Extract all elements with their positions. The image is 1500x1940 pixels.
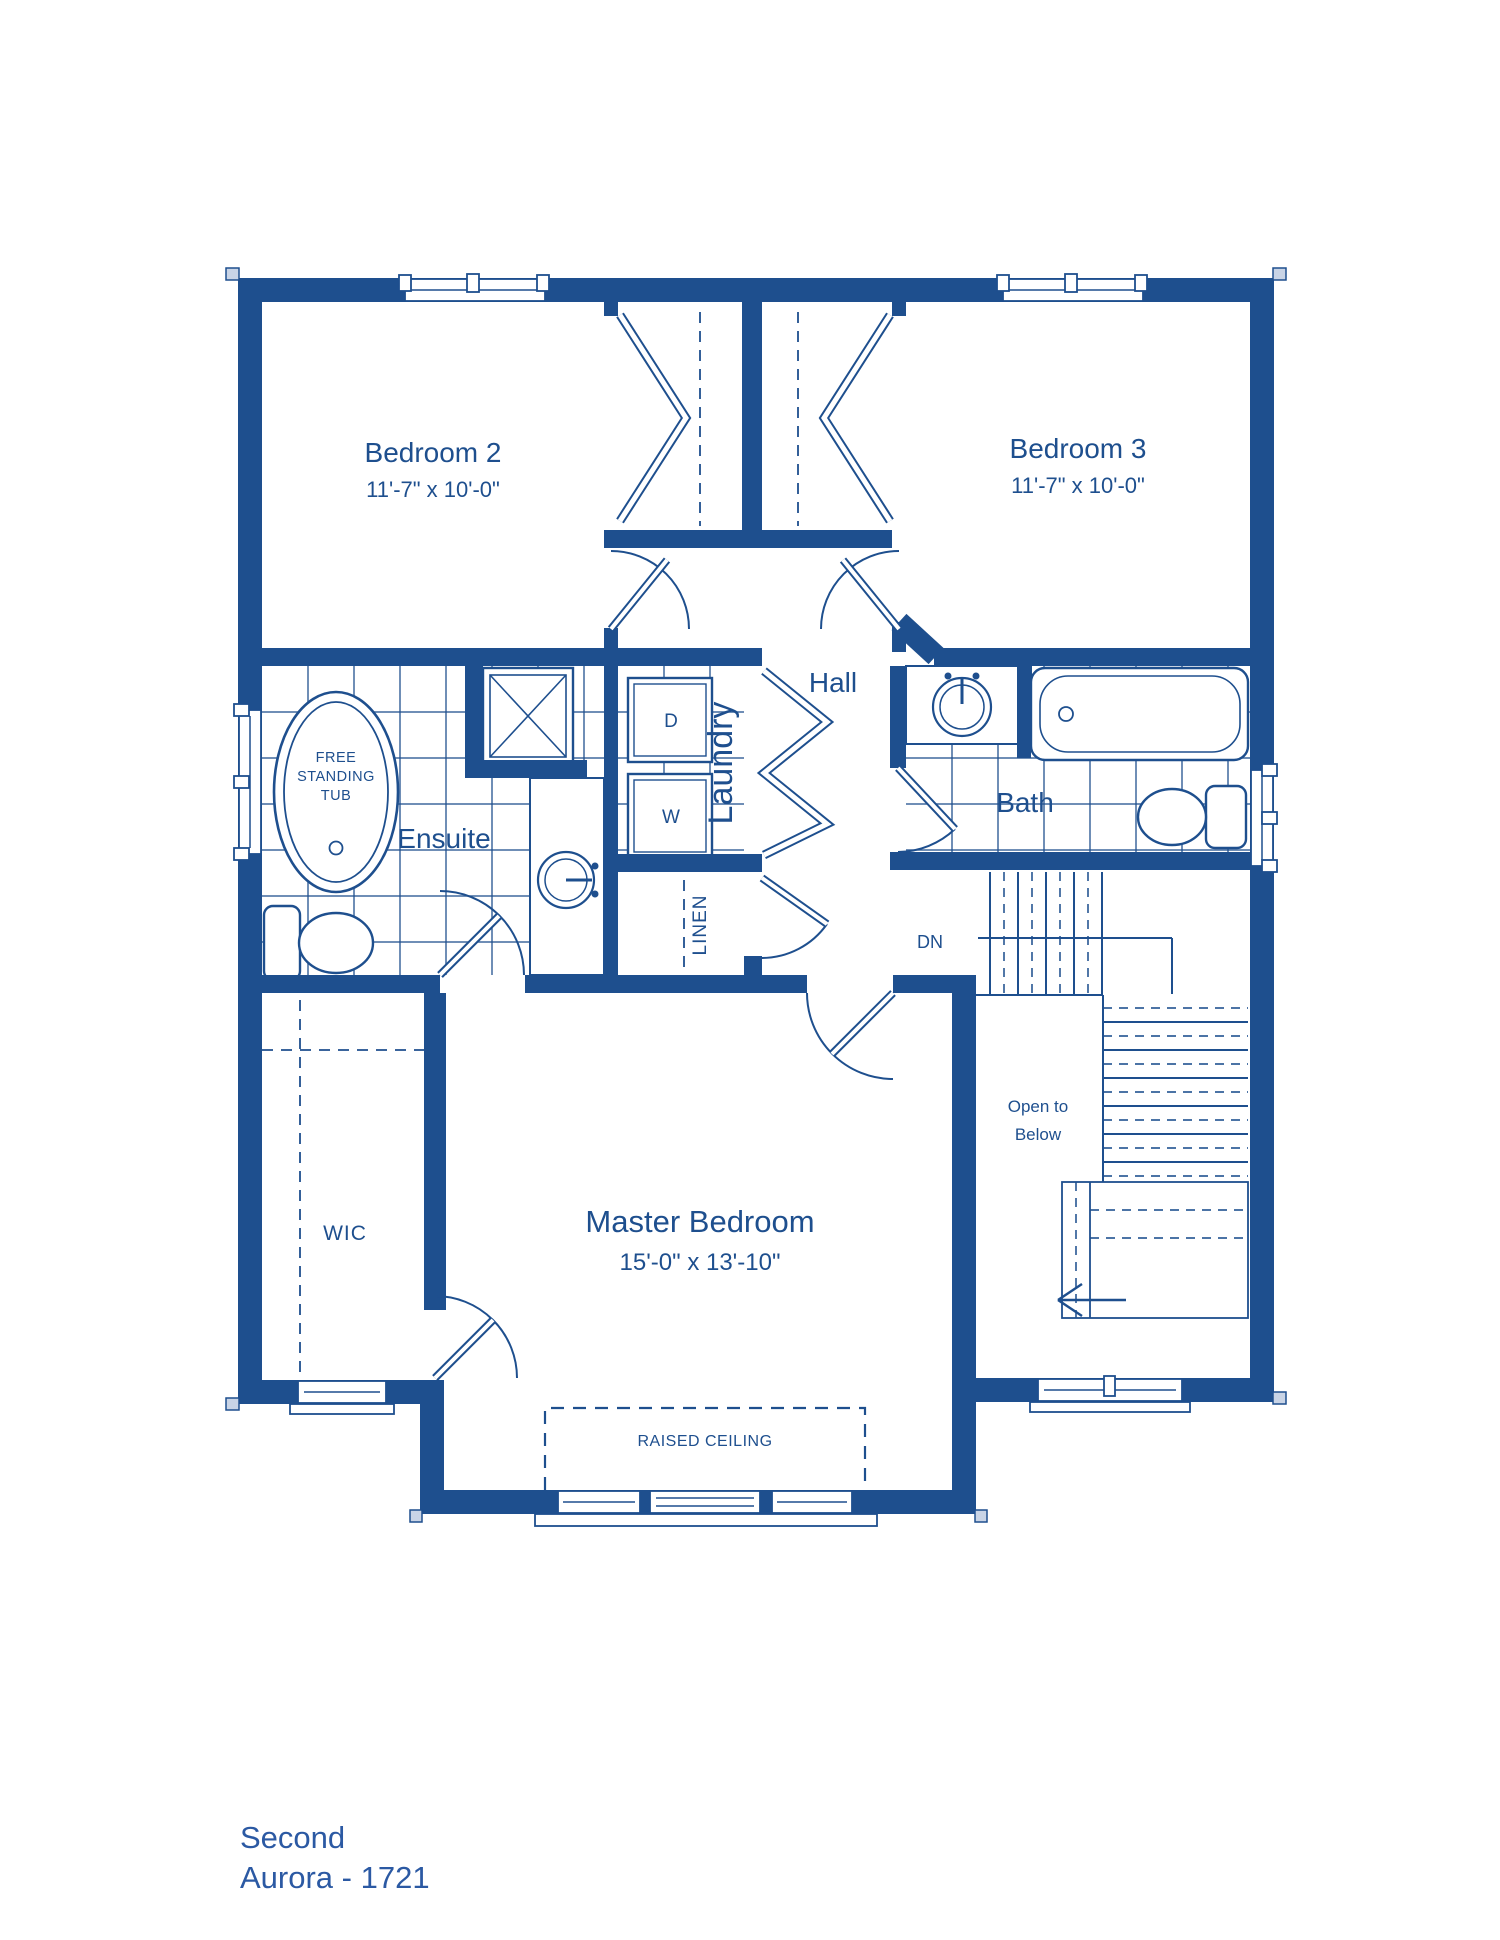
bedroom3-dims: 11'-7" x 10'-0" [1011,473,1145,498]
stairs-landing [1062,1182,1248,1318]
window-master-1 [558,1491,640,1513]
bath-label: Bath [996,787,1054,818]
master-bedroom-label: Master Bedroom [585,1204,814,1239]
dryer-label: D [664,711,678,732]
floorplan-page: Bedroom 2 11'-7" x 10'-0" Bedroom 3 11'-… [0,0,1500,1940]
bathtub-icon [1031,668,1248,760]
tub-label-line3: TUB [321,788,352,804]
open-below-line2: Below [1015,1125,1062,1144]
door-arc-bath [898,829,955,852]
laundry-label: Laundry [702,702,740,825]
raised-ceiling-label: RAISED CEILING [637,1433,772,1450]
window-stairs [1030,1376,1190,1412]
linen-label: LINEN [690,895,711,956]
hall-label: Hall [809,667,857,698]
window-master-3 [772,1491,852,1513]
bifold-closet-bedroom3 [824,315,890,521]
plan-model-name: Aurora - 1721 [240,1860,430,1895]
bath-toilet-icon [1138,786,1246,848]
master-bedroom-dims: 15'-0" x 13'-10" [620,1249,781,1276]
window-master-2 [650,1491,760,1513]
open-below-line1: Open to [1008,1097,1069,1116]
wic-label: WIC [323,1222,367,1245]
window-bath [1251,764,1277,872]
ensuite-vanity [530,778,604,975]
washer-label: W [662,807,680,828]
ensuite-toilet-icon [264,906,373,980]
stairs-direction-arrow [1058,1284,1126,1316]
bedroom2-dims: 11'-7" x 10'-0" [366,477,500,502]
floorplan-drawing: Bedroom 2 11'-7" x 10'-0" Bedroom 3 11'-… [0,0,1500,1940]
ensuite-label: Ensuite [397,823,490,854]
plan-floor-name: Second [240,1820,345,1855]
stairs [976,872,1248,1318]
window-wic [290,1381,394,1414]
door-arc-linen [762,924,827,958]
wall-master-right [952,993,976,1514]
bedroom2-label: Bedroom 2 [365,437,502,468]
bedroom3-label: Bedroom 3 [1010,433,1147,464]
tub-label-line1: FREE [316,750,357,766]
shower-icon [483,668,573,764]
bath-vanity [906,666,1031,744]
stairs-down-label: DN [917,932,943,952]
bifold-closet-bedroom2 [620,315,686,521]
tub-label-line2: STANDING [297,769,375,785]
window-master-sill [535,1514,877,1526]
